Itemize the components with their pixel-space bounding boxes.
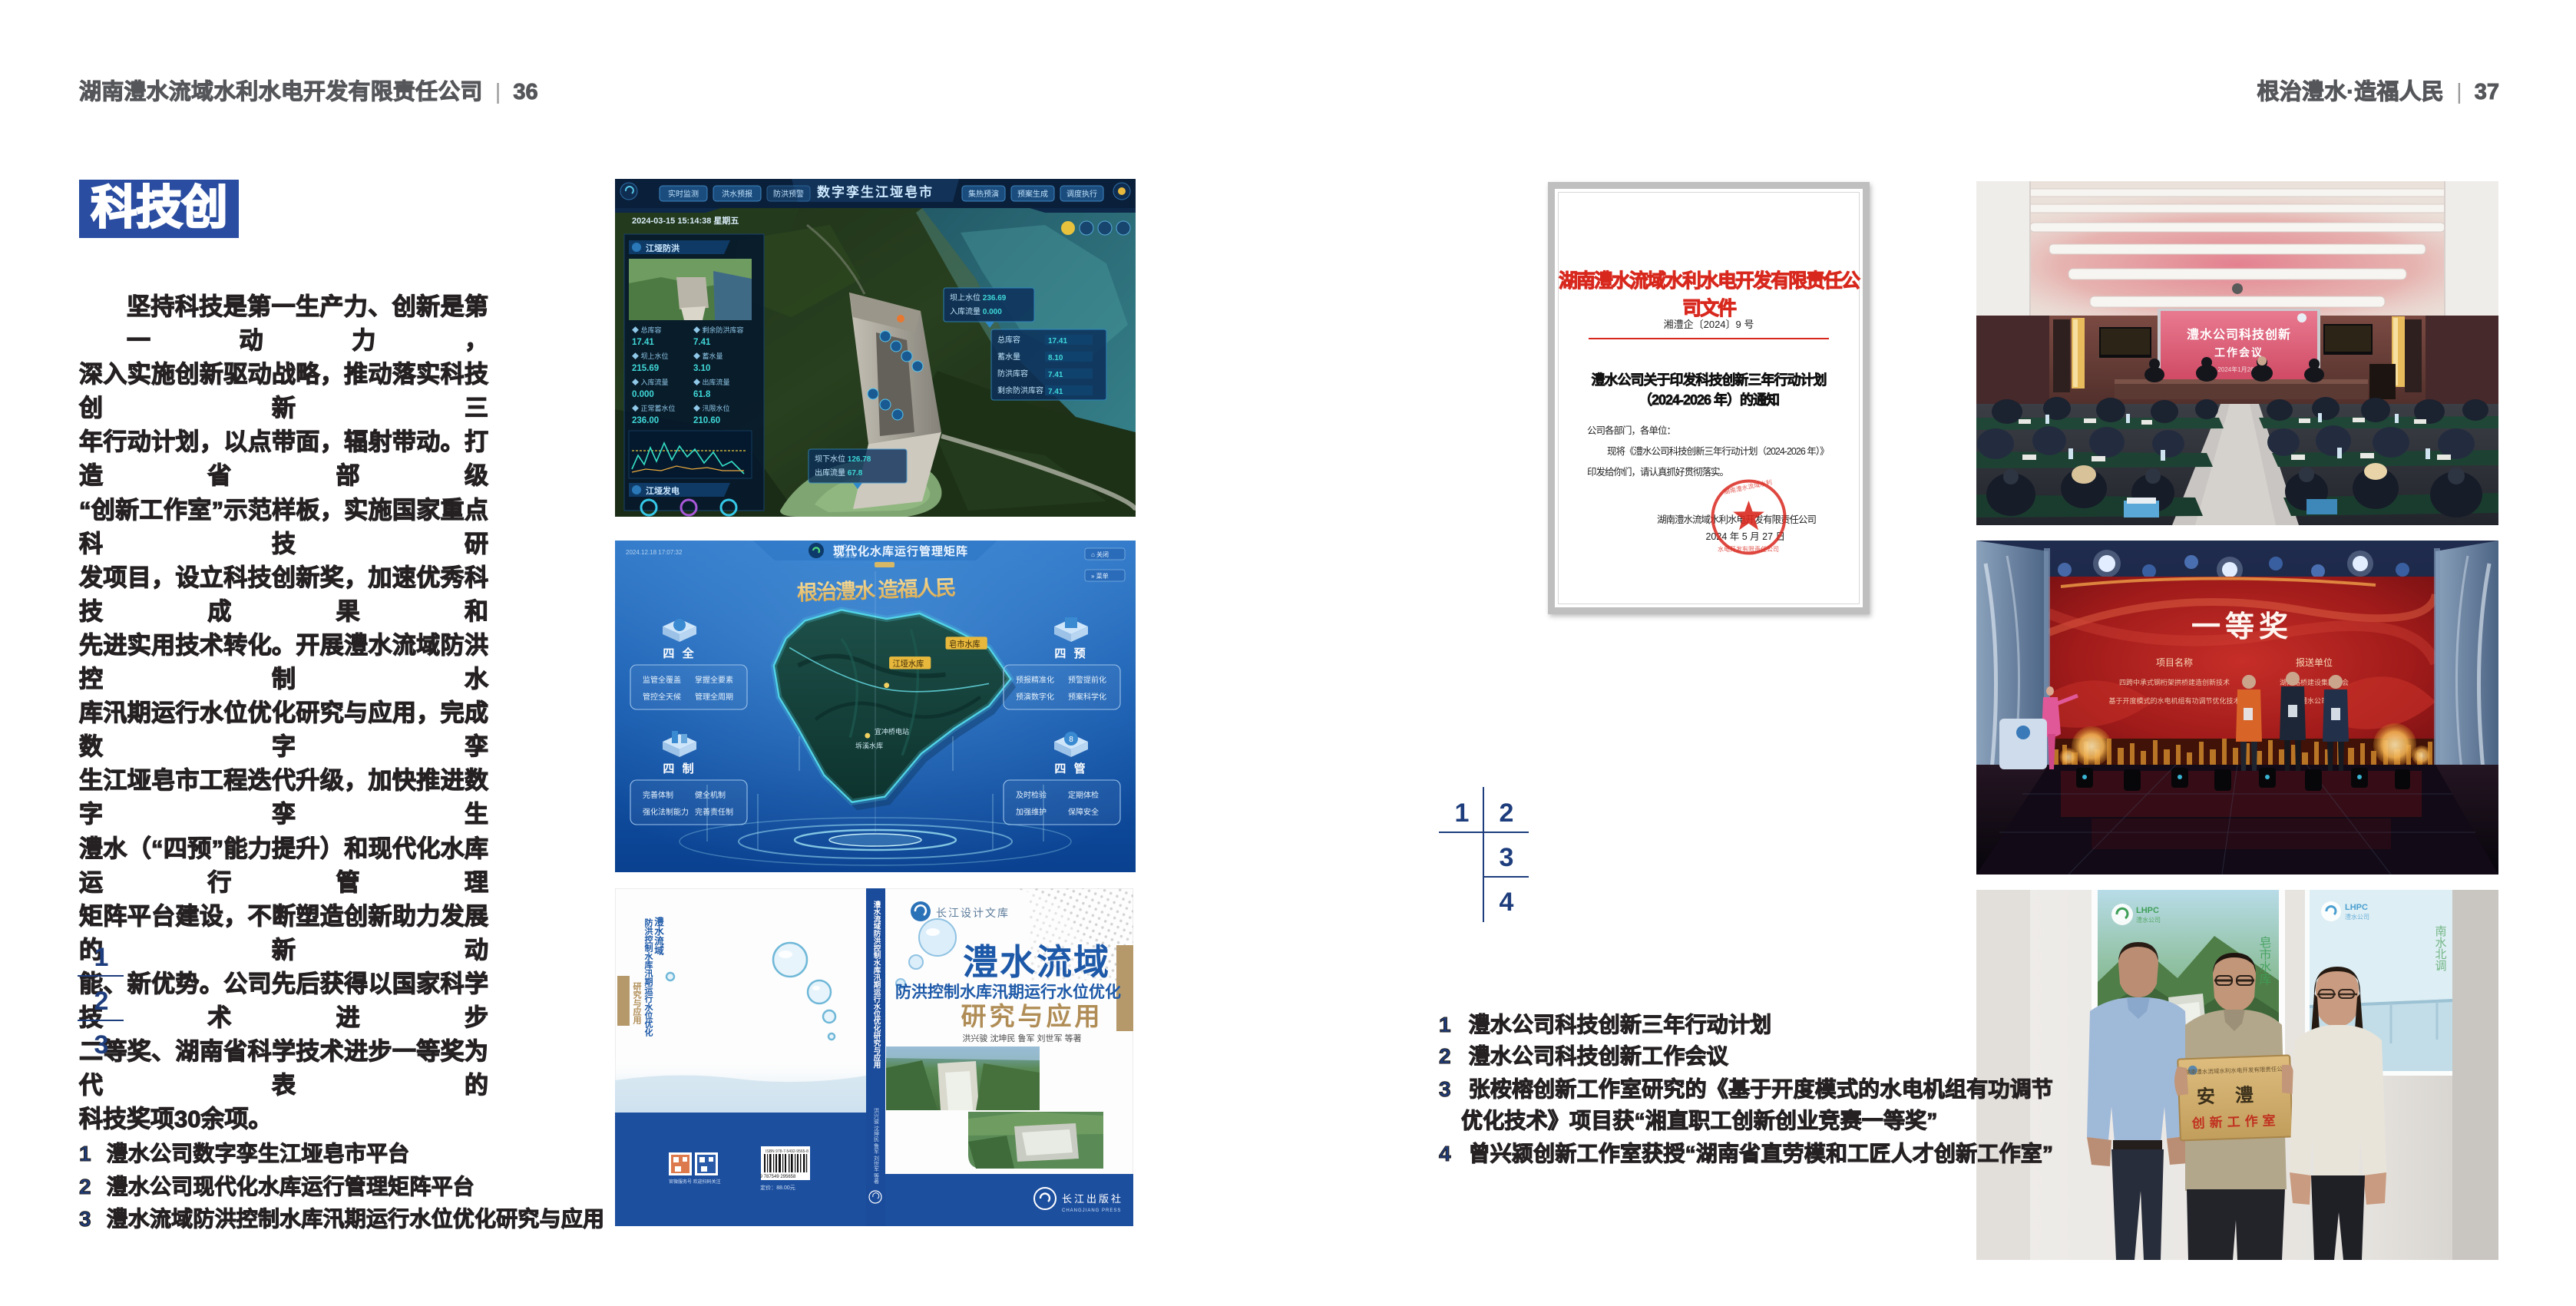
svg-text:LHPC: LHPC: [2345, 903, 2368, 912]
svg-text:⌂ 关闭: ⌂ 关闭: [1091, 551, 1109, 558]
svg-text:9 787549 295658: 9 787549 295658: [760, 1175, 796, 1179]
svg-text:报送单位: 报送单位: [2296, 656, 2333, 668]
svg-text:坝下水位 126.78: 坝下水位 126.78: [815, 454, 871, 464]
svg-text:皂市水库: 皂市水库: [2257, 936, 2272, 985]
svg-text:7.41: 7.41: [1048, 371, 1063, 379]
svg-text:7.41: 7.41: [1048, 388, 1063, 396]
svg-text:南水北调: 南水北调: [2434, 925, 2447, 972]
svg-text:四 全: 四 全: [663, 646, 696, 660]
svg-text:加强维护: 加强维护: [1016, 807, 1047, 817]
svg-text:蓄水量: 蓄水量: [997, 352, 1020, 362]
svg-text:强化法制能力: 强化法制能力: [643, 807, 689, 817]
svg-text:3.10: 3.10: [693, 364, 710, 373]
svg-text:预演数字化: 预演数字化: [1016, 692, 1054, 702]
svg-text:预案生成: 预案生成: [1017, 189, 1048, 199]
svg-text:长江出版社: 长江出版社: [1062, 1193, 1123, 1205]
svg-text:研究与应用: 研究与应用: [961, 1002, 1103, 1030]
svg-text:◆ 蓄水量: ◆ 蓄水量: [693, 352, 723, 360]
svg-text:基于开度模式的水电机组有功调节优化技术: 基于开度模式的水电机组有功调节优化技术: [2108, 696, 2240, 705]
svg-text:◆ 剩余防洪库容: ◆ 剩余防洪库容: [693, 326, 744, 334]
svg-text:17.41: 17.41: [1048, 337, 1067, 346]
svg-text:管控全天候: 管控全天候: [643, 692, 681, 702]
svg-text:澧水公司: 澧水公司: [2136, 916, 2161, 924]
svg-text:四 预: 四 预: [1054, 647, 1087, 660]
svg-text:澧水流域防洪控制水库汛期运行水位优化研究与应用: 澧水流域防洪控制水库汛期运行水位优化研究与应用: [872, 900, 882, 1069]
svg-text:ISBN 978-7-5492-9565-8: ISBN 978-7-5492-9565-8: [766, 1149, 809, 1154]
svg-text:实时监测: 实时监测: [668, 189, 699, 199]
svg-text:管理全周期: 管理全周期: [695, 692, 733, 702]
svg-text:CHANGJIANG PRESS: CHANGJIANG PRESS: [1062, 1208, 1121, 1213]
svg-text:17.41: 17.41: [632, 338, 654, 347]
svg-text:完善责任制: 完善责任制: [695, 807, 733, 817]
svg-text:掌握全要素: 掌握全要素: [695, 675, 733, 685]
svg-text:调度执行: 调度执行: [1066, 189, 1097, 199]
svg-text:预报精准化: 预报精准化: [1016, 675, 1054, 685]
svg-text:预警提前化: 预警提前化: [1068, 675, 1106, 685]
svg-text:7.41: 7.41: [693, 338, 711, 347]
svg-text:及时检验: 及时检验: [1016, 790, 1047, 800]
svg-text:◆ 入库流量: ◆ 入库流量: [632, 378, 669, 386]
svg-text:防洪控制水库汛期运行水位优化: 防洪控制水库汛期运行水位优化: [643, 918, 654, 1037]
svg-text:工作会议: 工作会议: [2214, 346, 2264, 359]
svg-text:洪水预报: 洪水预报: [722, 189, 752, 199]
svg-text:澧水流域: 澧水流域: [653, 916, 663, 956]
svg-text:坼溪水库: 坼溪水库: [855, 741, 883, 749]
svg-text:防洪库容: 防洪库容: [997, 369, 1028, 379]
svg-text:澧水公司: 澧水公司: [2345, 913, 2369, 921]
svg-text:◆ 汛限水位: ◆ 汛限水位: [693, 404, 730, 412]
svg-text:监管全覆盖: 监管全覆盖: [643, 675, 681, 685]
svg-text:健全机制: 健全机制: [695, 790, 726, 800]
svg-text:保障安全: 保障安全: [1068, 807, 1099, 817]
svg-text:◆ 出库流量: ◆ 出库流量: [693, 378, 730, 386]
svg-text:出库流量 67.8: 出库流量 67.8: [815, 468, 863, 478]
svg-text:安澧: 安澧: [2196, 1083, 2273, 1107]
svg-text:江垭发电: 江垭发电: [646, 485, 680, 496]
svg-text:8.10: 8.10: [1048, 354, 1063, 362]
svg-text:防洪预警: 防洪预警: [773, 189, 804, 199]
svg-text:创新工作室: 创新工作室: [2191, 1113, 2280, 1131]
svg-text:江垭水库: 江垭水库: [893, 659, 924, 669]
svg-text:皂市水库: 皂市水库: [949, 639, 980, 649]
svg-text:长江设计文库: 长江设计文库: [936, 907, 1010, 919]
svg-text:数字孪生江垭皂市: 数字孪生江垭皂市: [817, 184, 934, 200]
svg-text:江垭防洪: 江垭防洪: [646, 243, 680, 253]
svg-text:研究与应用: 研究与应用: [632, 982, 642, 1025]
svg-text:洪兴骏 沈坤民 鲁军 刘世军 等著: 洪兴骏 沈坤民 鲁军 刘世军 等著: [962, 1033, 1081, 1043]
svg-text:定期体检: 定期体检: [1068, 790, 1099, 800]
svg-text:定价：88.00元: 定价：88.00元: [760, 1184, 795, 1191]
svg-text:预案科学化: 预案科学化: [1068, 692, 1106, 702]
svg-text:210.60: 210.60: [693, 416, 720, 425]
svg-text:澧水公司科技创新: 澧水公司科技创新: [2187, 327, 2291, 342]
svg-text:8: 8: [1069, 736, 1073, 744]
svg-text:完善体制: 完善体制: [643, 790, 673, 800]
svg-text:215.69: 215.69: [632, 364, 659, 373]
svg-text:四 管: 四 管: [1054, 762, 1087, 775]
svg-text:集热预演: 集热预演: [968, 189, 999, 199]
svg-text:四跨中承式钢桁架拱桥建造创新技术: 四跨中承式钢桁架拱桥建造创新技术: [2119, 678, 2230, 686]
svg-text:总库容: 总库容: [997, 335, 1020, 345]
svg-text:坝上水位 236.69: 坝上水位 236.69: [950, 293, 1007, 303]
svg-text:澧水流域: 澧水流域: [963, 942, 1110, 982]
svg-text:四 制: 四 制: [663, 762, 696, 775]
svg-text:一等奖: 一等奖: [2191, 611, 2293, 643]
svg-text:防洪控制水库汛期运行水位优化: 防洪控制水库汛期运行水位优化: [895, 983, 1121, 1001]
svg-text:宜冲桥电站: 宜冲桥电站: [875, 727, 909, 736]
svg-text:0.000: 0.000: [632, 390, 654, 399]
svg-text:2024.12.18 17:07:32: 2024.12.18 17:07:32: [626, 549, 683, 556]
svg-text:61.8: 61.8: [693, 390, 711, 399]
svg-text:2024-03-15 15:14:38 星期五: 2024-03-15 15:14:38 星期五: [632, 215, 739, 226]
svg-text:洪兴骏 沈坤民 鲁军 刘世军 等著: 洪兴骏 沈坤民 鲁军 刘世军 等著: [874, 1107, 880, 1185]
svg-text:入库流量 0.000: 入库流量 0.000: [950, 306, 1002, 316]
svg-text:水电开发有限责任公司: 水电开发有限责任公司: [1718, 545, 1779, 553]
svg-text:» 菜单: » 菜单: [1091, 572, 1109, 580]
svg-text:官微服务号 欢迎扫码关注: 官微服务号 欢迎扫码关注: [669, 1179, 721, 1185]
svg-text:◆ 坝上水位: ◆ 坝上水位: [632, 352, 669, 360]
svg-text:现代化水库运行管理矩阵: 现代化水库运行管理矩阵: [833, 544, 968, 558]
svg-text:剩余防洪库容: 剩余防洪库容: [997, 385, 1043, 395]
svg-text:236.00: 236.00: [632, 416, 659, 425]
svg-text:项目名称: 项目名称: [2156, 656, 2193, 668]
svg-text:◆ 正常蓄水位: ◆ 正常蓄水位: [632, 404, 676, 412]
svg-text:LHPC: LHPC: [2136, 906, 2159, 915]
svg-text:◆ 总库容: ◆ 总库容: [632, 326, 662, 334]
